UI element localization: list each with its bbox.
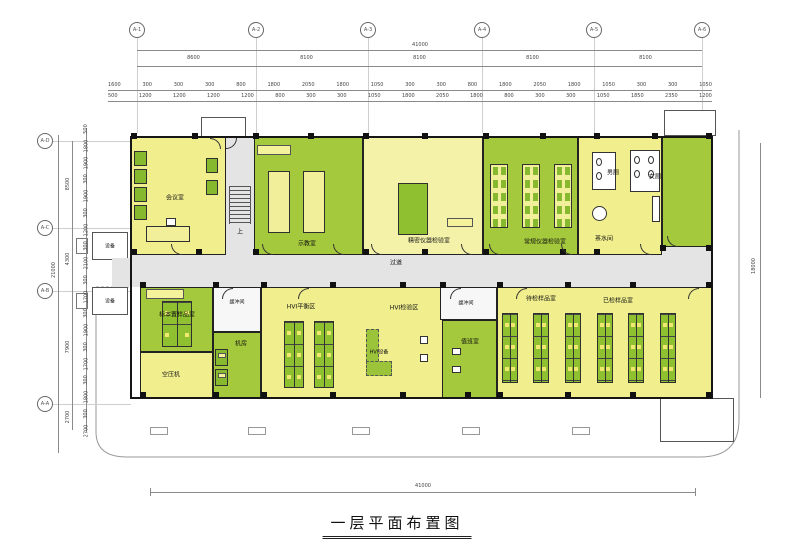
equipment-tag [218,373,226,378]
dim-value: 800 [236,82,246,88]
dim-value: 1200 [207,93,220,99]
label-tea: 茶水间 [595,234,613,243]
label-equipment-a: 设备 [105,243,115,250]
dim-value: 1050 [597,93,610,99]
corridor-right [662,247,712,287]
lab-bench [522,164,540,228]
dim-value: 1700 [83,290,89,303]
dim-detail-row2: 5001200120012001200800300300105018002050… [108,93,712,99]
label-toilet-male: 男厕 [607,168,619,177]
toilet-icon [596,158,602,166]
dim-total-top: 41000 [412,42,428,48]
dim-left-overall: 8500 [65,178,71,191]
dim-value: 1850 [631,93,644,99]
grid-line [53,228,131,229]
dim-value: 1700 [83,357,89,370]
instrument-bench [398,183,428,235]
room-duty [442,320,497,398]
dim-value: 500 [108,93,118,99]
label-hvi-equipment: HVI设备 [370,349,389,356]
dim-value: 1200 [241,93,254,99]
dim-value: 1800 [470,93,483,99]
storage-rack [284,321,304,388]
planter [150,427,168,435]
label-compressor: 空压机 [162,370,180,379]
grid-bubble-a3: A-3 [360,22,376,38]
dim-value: 1900 [83,156,89,169]
grid-bubble-aa: A-A [37,396,53,412]
toilet-icon [648,156,654,164]
storage-rack [597,313,613,383]
dim-tick [695,488,696,496]
dim-value: 1800 [267,82,280,88]
dim-value: 2050 [302,82,315,88]
desk [166,218,176,226]
storage-rack [628,313,644,383]
storage-rack [660,313,676,383]
corridor [131,255,712,287]
toilet-icon [596,172,602,180]
hvi-machine [366,361,392,376]
planter [248,427,266,435]
desk [420,354,428,362]
dim-left-overall: 4300 [65,253,71,266]
grid-line [53,141,131,142]
dim-line [72,141,73,430]
basin-icon [592,206,607,221]
dim-value: 1800 [83,391,89,404]
label-sample-store: 标本置样品室 [159,310,195,319]
dim-line [108,101,712,102]
label-hvi-balance: HVI平衡区 [287,302,315,311]
dim-line [137,66,702,67]
dim-value: 300 [83,242,89,252]
room-buffer-a [213,287,261,332]
dim-value: 1800 [336,82,349,88]
stair-up-label: 上 [237,227,243,236]
grid-bubble-a4: A-4 [474,22,490,38]
dim-value: 300 [535,93,545,99]
planter [352,427,370,435]
drawing-title: 一层平面布置图 [323,512,472,539]
dim-detail-row1: 1600300300300800180020501800105030030080… [108,82,712,88]
dim-value: 300 [83,409,89,419]
desk [452,366,461,373]
dim-value: 300 [405,82,415,88]
dim-value: 800 [275,93,285,99]
storage-rack [162,301,192,347]
dim-value: 300 [436,82,446,88]
label-machine: 机房 [235,339,247,348]
dim-right-total: 18000 [751,258,757,274]
desk [452,348,461,355]
dim-value: 300 [83,175,89,185]
dim-value: 2050 [436,93,449,99]
dim-spans-top: 86008100810081008100 [137,55,702,61]
planter [462,427,480,435]
dim-tick [150,488,151,496]
dim-value: 8100 [589,55,702,61]
lab-bench [490,164,508,228]
storage-rack [502,313,518,383]
dim-value: 8100 [476,55,589,61]
dim-value: 1900 [83,324,89,337]
dim-value: 300 [566,93,576,99]
dim-value: 2350 [665,93,678,99]
equipment-tag [257,145,291,155]
dim-value: 1900 [83,190,89,203]
label-buffer-a: 缓冲间 [229,299,244,306]
dim-left-outer-total: 21000 [51,262,57,278]
equipment-tag [146,289,184,299]
room-right-green [662,137,712,247]
desk [420,336,428,344]
entrance-porch-bottom-right [660,398,734,442]
dim-total-bottom: 41000 [415,483,431,489]
entrance-porch-top-right [664,110,716,136]
entrance-porch-top [201,117,246,138]
dim-value: 800 [468,82,478,88]
label-corridor: 过道 [390,258,402,267]
lab-bench [554,164,572,228]
dim-value: 1050 [699,82,712,88]
dim-left-overall: 7900 [65,341,71,354]
cabinet [134,187,147,202]
dim-value: 1050 [602,82,615,88]
cabinet [206,180,218,195]
dim-value: 300 [142,82,152,88]
label-equipment-b: 设备 [105,298,115,305]
dim-value: 300 [83,309,89,319]
grid-bubble-ac: A-C [37,220,53,236]
grid-bubble-a2: A-2 [248,22,264,38]
structural-columns [0,0,6,6]
label-instrument: 精密仪器检验室 [408,236,450,245]
dim-value: 1050 [371,82,384,88]
dim-value: 300 [83,376,89,386]
dim-line [137,50,702,51]
dim-value: 1800 [499,82,512,88]
dim-value: 300 [83,208,89,218]
dim-value: 8100 [250,55,363,61]
dim-value: 300 [174,82,184,88]
dim-value: 300 [668,82,678,88]
hvi-machine [366,329,379,362]
cabinet [134,205,147,220]
dim-value: 300 [637,82,647,88]
table [146,226,190,242]
dim-line [760,143,761,398]
label-buffer-b: 缓冲间 [458,300,473,307]
storage-rack [565,313,581,383]
grid-bubble-ad: A-D [37,133,53,149]
storage-rack [314,321,334,388]
dim-value: 8600 [137,55,250,61]
corridor-stub [112,258,133,287]
dim-value: 2700 [83,424,89,437]
label-toilet-female: 女厕 [649,172,661,181]
label-hvi-test: HVI检验区 [390,303,418,312]
label-samples-pending: 待检样品室 [526,294,556,303]
dim-value: 300 [205,82,215,88]
grid-line [53,404,131,405]
dim-value: 1200 [83,223,89,236]
floor-plan-sheet: A-1 A-2 A-3 A-4 A-5 A-6 A-D A-C A-B A-A … [0,0,806,554]
cabinet [134,169,147,184]
label-lab: 常规仪器检验室 [524,237,566,246]
label-samples-checked: 已检样品室 [603,296,633,305]
cabinet [134,151,147,166]
demo-table [303,171,325,233]
dim-left-detail: 5001800190030019003001200300210030017003… [80,126,92,434]
dim-value: 1800 [83,139,89,152]
dim-value: 1800 [402,93,415,99]
equipment-tag [447,218,473,227]
cabinet [206,158,218,173]
label-duty: 值班室 [461,337,479,346]
dim-value: 300 [83,342,89,352]
dim-value: 1200 [173,93,186,99]
dim-value: 500 [83,124,89,134]
staircase [229,186,251,224]
dim-value: 300 [83,275,89,285]
counter [652,196,660,222]
grid-bubble-ab: A-B [37,283,53,299]
dim-line [150,492,695,493]
storage-rack [533,313,549,383]
toilet-icon [634,170,640,178]
label-meeting: 会议室 [166,193,184,202]
demo-table [268,171,290,233]
dim-value: 1600 [108,82,121,88]
label-demo: 示教室 [298,239,316,248]
dim-line [108,90,712,91]
dim-value: 300 [337,93,347,99]
dim-value: 8100 [363,55,476,61]
dim-value: 1800 [568,82,581,88]
equipment-tag [218,353,226,358]
dim-value: 300 [306,93,316,99]
dim-value: 1200 [139,93,152,99]
planter [572,427,590,435]
dim-value: 2050 [533,82,546,88]
dim-left-overall: 2700 [65,411,71,424]
grid-bubble-a1: A-1 [129,22,145,38]
grid-bubble-a5: A-5 [586,22,602,38]
grid-bubble-a6: A-6 [694,22,710,38]
dim-line [58,135,59,453]
dim-value: 2100 [83,257,89,270]
toilet-icon [634,156,640,164]
dim-value: 1050 [368,93,381,99]
dim-value: 1200 [699,93,712,99]
dim-value: 800 [504,93,514,99]
